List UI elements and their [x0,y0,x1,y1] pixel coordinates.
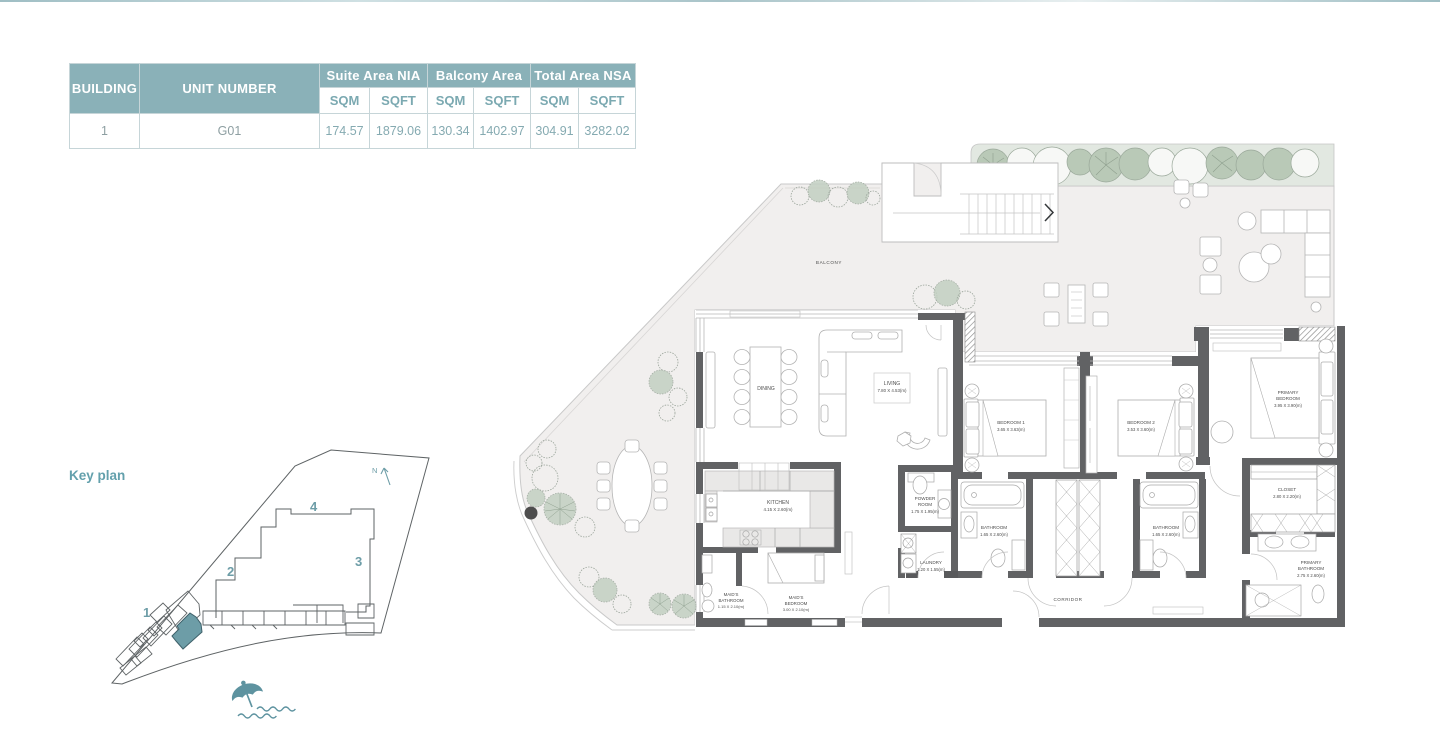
svg-text:KITCHEN: KITCHEN [767,500,789,506]
svg-text:2: 2 [227,564,234,579]
svg-text:BATHROOM: BATHROOM [1298,566,1324,571]
svg-text:BEDROOM 1: BEDROOM 1 [997,420,1025,425]
svg-text:1.15 X 2.10(m): 1.15 X 2.10(m) [718,604,745,609]
svg-text:Key plan: Key plan [69,468,125,483]
svg-text:CORRIDOR: CORRIDOR [1053,597,1082,602]
svg-text:3: 3 [355,554,362,569]
svg-text:1.20 X 1.55(m): 1.20 X 1.55(m) [917,567,945,572]
svg-text:4: 4 [310,499,318,514]
svg-text:BEDROOM: BEDROOM [1276,396,1300,401]
svg-text:2.80 X 2.20(m): 2.80 X 2.20(m) [1273,494,1301,499]
svg-text:7.80 X 4.53(m): 7.80 X 4.53(m) [877,388,907,393]
svg-text:N: N [372,466,377,475]
svg-text:CLOSET: CLOSET [1278,487,1297,492]
svg-text:BEDROOM 2: BEDROOM 2 [1127,420,1155,425]
svg-text:MAID'S: MAID'S [789,595,804,600]
svg-text:LIVING: LIVING [884,381,901,387]
svg-text:1.75 X 1.95(m): 1.75 X 1.95(m) [911,509,939,514]
svg-text:3.00 X 2.10(m): 3.00 X 2.10(m) [783,607,810,612]
svg-text:1: 1 [143,605,150,620]
svg-text:POWDER: POWDER [915,496,936,501]
svg-text:PRIMARY: PRIMARY [1278,390,1299,395]
svg-text:BATHROOM: BATHROOM [718,598,743,603]
svg-text:BATHROOM: BATHROOM [1153,525,1179,530]
svg-text:MAID'S: MAID'S [724,592,739,597]
svg-text:1.65 X 2.60(m): 1.65 X 2.60(m) [1152,532,1180,537]
svg-text:PRIMARY: PRIMARY [1301,560,1322,565]
svg-text:3.95 X 3.90(m): 3.95 X 3.90(m) [1274,403,1302,408]
svg-text:3.53 X 3.60(m): 3.53 X 3.60(m) [1127,427,1155,432]
svg-text:BALCONY: BALCONY [816,260,842,265]
svg-text:DINING: DINING [757,386,775,392]
svg-text:ROOM: ROOM [918,502,932,507]
svg-text:2.75 X 2.60(m): 2.75 X 2.60(m) [1297,573,1325,578]
svg-text:4.15 X 2.60(m): 4.15 X 2.60(m) [763,507,793,512]
svg-text:3.65 X 3.63(m): 3.65 X 3.63(m) [997,427,1025,432]
svg-text:BATHROOM: BATHROOM [981,525,1007,530]
svg-text:1.65 X 2.60(m): 1.65 X 2.60(m) [980,532,1008,537]
svg-text:BEDROOM: BEDROOM [785,601,808,606]
svg-text:LAUNDRY: LAUNDRY [920,560,942,565]
